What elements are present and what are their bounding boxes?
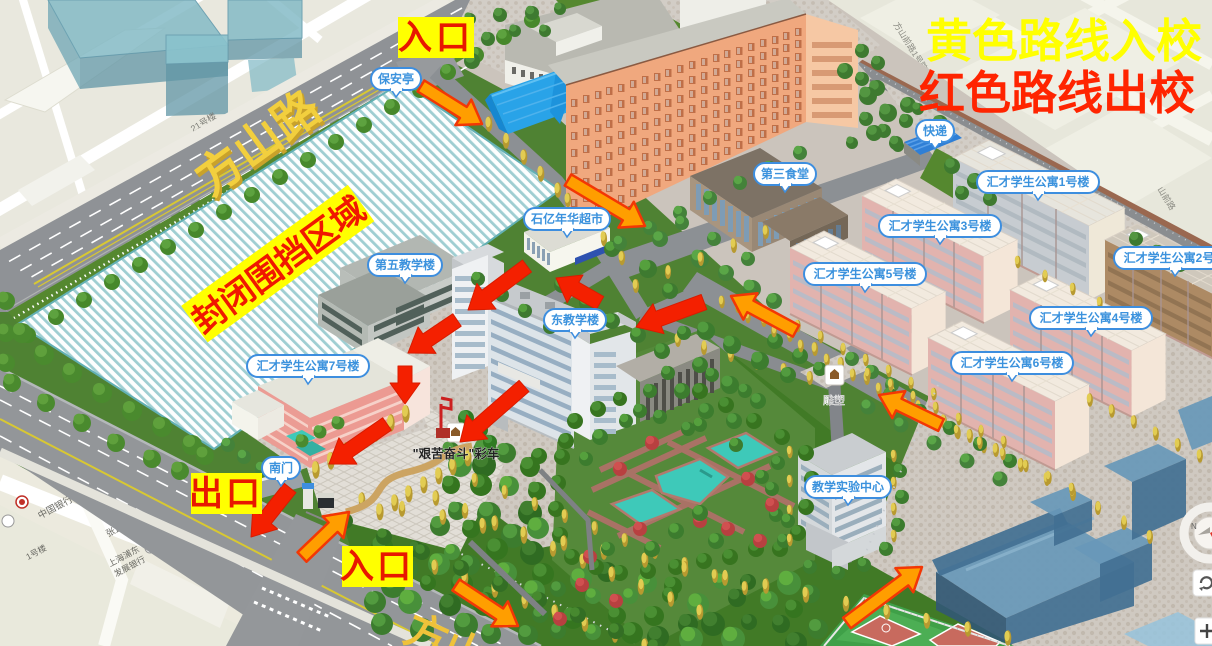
svg-text:第三食堂: 第三食堂 — [761, 166, 809, 181]
svg-text:黄色路线入校: 黄色路线入校 — [926, 15, 1202, 67]
svg-text:第五教学楼: 第五教学楼 — [375, 257, 435, 272]
svg-text:快递: 快递 — [923, 123, 947, 138]
svg-text:入口: 入口 — [398, 19, 474, 57]
svg-text:出口: 出口 — [189, 475, 263, 513]
svg-text:汇才学生公寓2号楼: 汇才学生公寓2号楼 — [1124, 250, 1212, 265]
svg-text:东教学楼: 东教学楼 — [551, 312, 599, 327]
svg-text:汇才学生公寓7号楼: 汇才学生公寓7号楼 — [257, 358, 360, 373]
svg-text:红色路线出校: 红色路线出校 — [919, 67, 1195, 119]
svg-text:保安亭: 保安亭 — [377, 71, 414, 86]
svg-text:汇才学生公寓6号楼: 汇才学生公寓6号楼 — [961, 355, 1064, 370]
svg-text:汇才学生公寓5号楼: 汇才学生公寓5号楼 — [814, 266, 917, 281]
svg-text:汇才学生公寓3号楼: 汇才学生公寓3号楼 — [889, 218, 992, 233]
svg-text:汇才学生公寓4号楼: 汇才学生公寓4号楼 — [1040, 310, 1143, 325]
svg-text:南门: 南门 — [269, 460, 293, 475]
svg-text:"艰苦奋斗"彩车: "艰苦奋斗"彩车 — [413, 446, 500, 461]
svg-text:教学实验中心: 教学实验中心 — [811, 479, 884, 494]
svg-text:雕塑: 雕塑 — [823, 393, 845, 407]
svg-text:石亿年华超市: 石亿年华超市 — [530, 211, 603, 226]
svg-text:入口: 入口 — [340, 548, 414, 586]
svg-text:N: N — [1191, 522, 1197, 531]
svg-text:汇才学生公寓1号楼: 汇才学生公寓1号楼 — [987, 174, 1090, 189]
